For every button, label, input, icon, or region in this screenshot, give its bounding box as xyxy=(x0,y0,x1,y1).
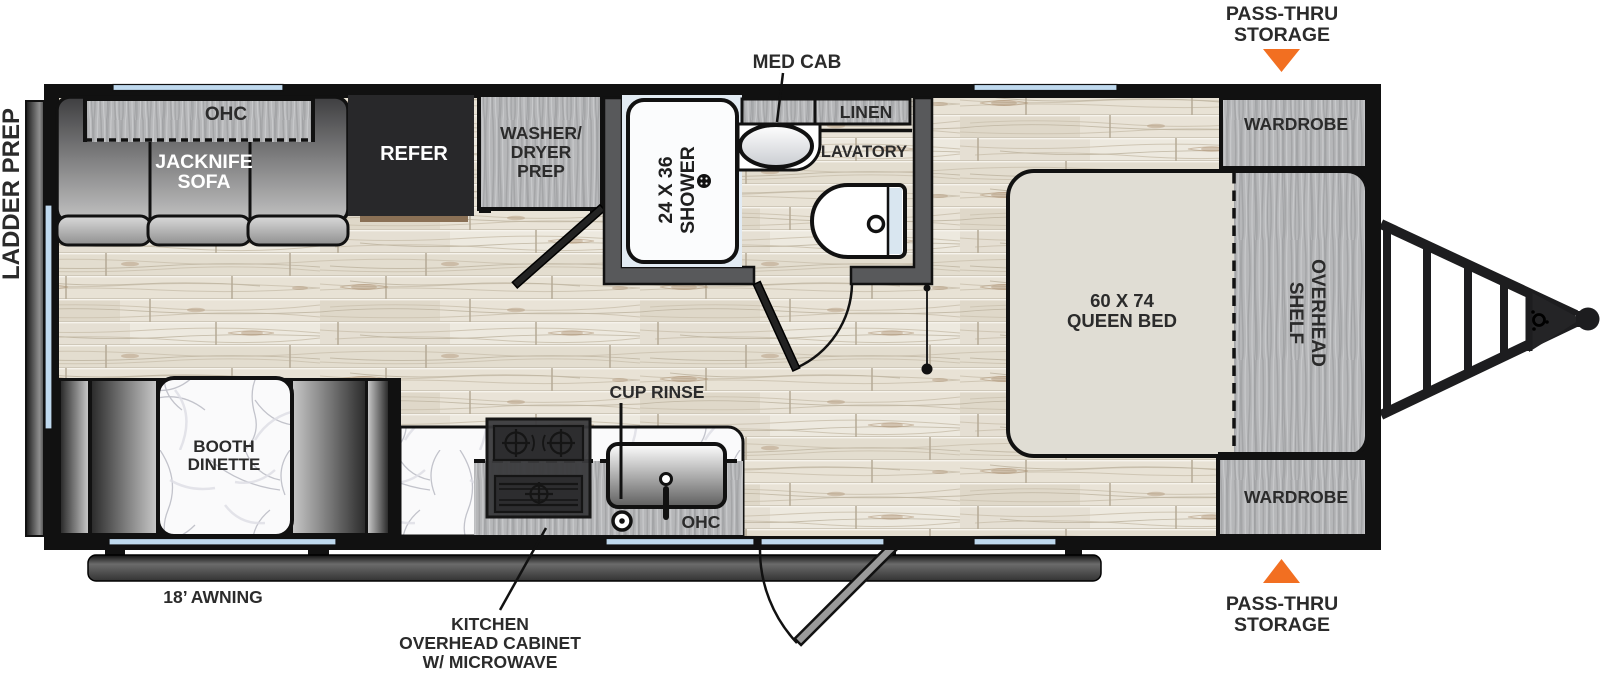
svg-text:OHC: OHC xyxy=(205,104,248,125)
svg-text:LAVATORY: LAVATORY xyxy=(821,143,907,161)
svg-text:DINETTE: DINETTE xyxy=(188,455,261,474)
svg-text:WARDROBE: WARDROBE xyxy=(1244,487,1348,507)
svg-text:STORAGE: STORAGE xyxy=(1234,614,1330,636)
svg-text:CUP RINSE: CUP RINSE xyxy=(610,382,705,402)
svg-text:PREP: PREP xyxy=(517,161,565,181)
svg-text:STORAGE: STORAGE xyxy=(1234,24,1330,46)
svg-text:18’ AWNING: 18’ AWNING xyxy=(163,587,263,607)
svg-text:SHELF: SHELF xyxy=(1285,282,1306,344)
svg-text:PASS-THRU: PASS-THRU xyxy=(1226,3,1338,25)
svg-text:REFER: REFER xyxy=(380,143,448,165)
svg-text:24 X 36: 24 X 36 xyxy=(655,156,677,223)
svg-text:W/ MICROWAVE: W/ MICROWAVE xyxy=(423,652,558,672)
svg-text:WASHER/: WASHER/ xyxy=(500,123,582,143)
svg-text:LINEN: LINEN xyxy=(840,102,893,122)
svg-text:LADDER PREP: LADDER PREP xyxy=(0,108,25,280)
svg-text:MED CAB: MED CAB xyxy=(753,52,842,73)
svg-text:SOFA: SOFA xyxy=(177,171,230,193)
svg-text:OVERHEAD CABINET: OVERHEAD CABINET xyxy=(399,633,581,653)
svg-text:OVERHEAD: OVERHEAD xyxy=(1307,259,1328,367)
svg-text:PASS-THRU: PASS-THRU xyxy=(1226,593,1338,615)
svg-text:OHC: OHC xyxy=(682,512,721,532)
svg-text:BOOTH: BOOTH xyxy=(193,437,254,456)
svg-text:60 X 74: 60 X 74 xyxy=(1090,290,1154,311)
svg-text:KITCHEN: KITCHEN xyxy=(451,614,529,634)
svg-text:JACKNIFE: JACKNIFE xyxy=(155,151,253,173)
svg-text:SHOWER: SHOWER xyxy=(677,146,699,234)
svg-text:WARDROBE: WARDROBE xyxy=(1244,114,1348,134)
svg-text:QUEEN BED: QUEEN BED xyxy=(1067,310,1177,331)
svg-text:DRYER: DRYER xyxy=(511,142,572,162)
